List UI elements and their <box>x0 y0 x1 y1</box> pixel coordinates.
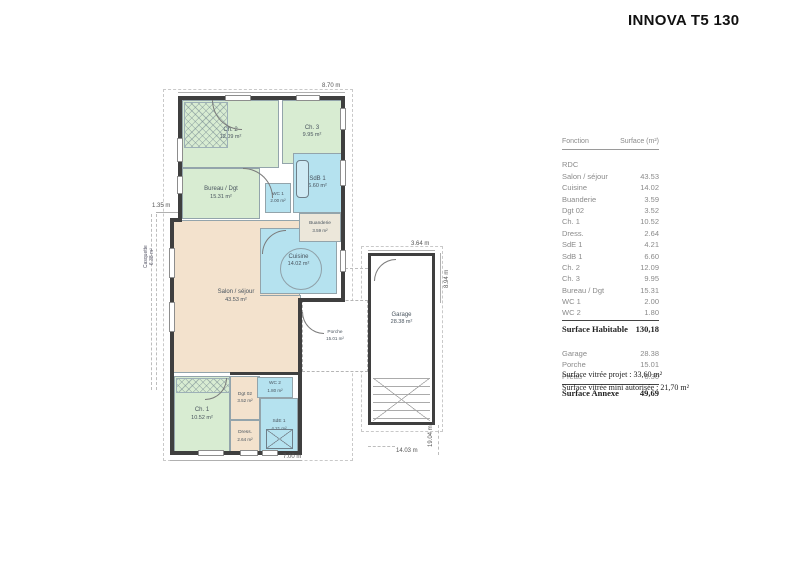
header-surface: Surface (m²) <box>620 138 659 145</box>
link-line-house-garage <box>345 268 368 269</box>
dim-1904: 19.04 m <box>428 425 434 447</box>
room-salon-extension <box>260 295 301 373</box>
window-left-1 <box>177 138 183 162</box>
dim-894: 8.94 m <box>444 270 450 288</box>
casquette-overhang-line-2 <box>156 214 157 390</box>
room-sdb1-label: SdB 1 6.60 m² <box>308 176 327 191</box>
window-left-4 <box>169 302 175 332</box>
table-row: Dgt 023.52 <box>562 204 659 215</box>
room-bureau-label: Bureau / Dgt 15.31 m² <box>204 186 238 201</box>
dim-1403: 14.03 m <box>396 448 418 454</box>
dimline-700 <box>170 460 302 461</box>
round-table <box>280 248 322 290</box>
table-row: Porche15.01 <box>562 358 659 369</box>
room-ch3-label: Ch. 3 9.95 m² <box>303 125 322 140</box>
dimline-1403 <box>368 446 395 447</box>
room-buanderie: Buanderie 3.59 m² <box>299 213 341 242</box>
table-row: SdB 16.60 <box>562 249 659 260</box>
window-right-3 <box>340 250 346 272</box>
room-buanderie-label: Buanderie 3.59 m² <box>309 221 331 233</box>
table-row: Salon / séjour43.53 <box>562 169 659 180</box>
room-ch1-label: Ch. 1 10.52 m² <box>191 407 213 422</box>
garage-ramp-hatch <box>373 378 430 421</box>
wall-porch-top <box>298 298 345 302</box>
dimline-894 <box>440 253 441 303</box>
dimline-870 <box>178 92 345 93</box>
table-row: Ch. 39.95 <box>562 272 659 283</box>
table-row: Cuisine14.02 <box>562 181 659 192</box>
table-row: Buanderie3.59 <box>562 192 659 203</box>
surface-table: Fonction Surface (m²) RDC Salon / séjour… <box>562 138 659 398</box>
room-salon-label: Salon / séjour 43.53 m² <box>218 289 255 304</box>
dimline-135 <box>156 212 178 213</box>
window-bottom-3 <box>262 450 278 456</box>
page-title: INNOVA T5 130 <box>628 12 739 29</box>
shower-sde1 <box>266 429 293 449</box>
table-row: Ch. 110.52 <box>562 215 659 226</box>
window-top-2 <box>296 95 320 101</box>
total-habitable: Surface Habitable 130,18 <box>562 320 659 334</box>
window-right-2 <box>340 160 346 186</box>
glass-note-project: Surface vitrée projet : 33,60 m² <box>562 369 732 382</box>
dim-700: 7.00 m <box>283 454 301 460</box>
table-row: WC 12.00 <box>562 295 659 306</box>
bathtub-sdb1 <box>296 160 309 198</box>
dimline-1904 <box>438 425 439 455</box>
glass-note-minimum: Surface vitrée mini autorisée : 21,70 m² <box>562 382 732 395</box>
table-row: Garage28.38 <box>562 346 659 357</box>
room-dress: Dress. 2.64 m² <box>230 420 260 453</box>
dim-870: 8.70 m <box>322 83 340 89</box>
section-rdc: RDC <box>562 158 659 169</box>
wall-porch-left <box>298 298 302 378</box>
room-garage-label: Garage 28.38 m² <box>391 312 413 327</box>
room-dgt02: Dgt 02 3.52 m² <box>230 376 260 420</box>
header-fonction: Fonction <box>562 138 589 145</box>
room-porche-label: Porche 15.01 m² <box>326 330 344 342</box>
table-row: WC 21.80 <box>562 306 659 317</box>
table-row: Dress.2.64 <box>562 226 659 237</box>
room-dgt02-label: Dgt 02 3.52 m² <box>237 392 252 404</box>
table-row: SdE 14.21 <box>562 238 659 249</box>
window-left-3 <box>169 248 175 278</box>
wall-wing-top <box>230 372 302 375</box>
table-row: Bureau / Dgt15.31 <box>562 283 659 294</box>
room-wc2-label: WC 2 1.80 m² <box>267 381 282 393</box>
window-right-1 <box>340 108 346 130</box>
dim-364: 3.64 m <box>411 241 429 247</box>
room-dress-label: Dress. 2.64 m² <box>237 430 252 442</box>
glass-surface-notes: Surface vitrée projet : 33,60 m² Surface… <box>562 369 732 394</box>
room-porche: Porche 15.01 m² <box>302 300 368 372</box>
casquette-overhang-line <box>151 214 152 390</box>
surface-table-header: Fonction Surface (m²) <box>562 138 659 150</box>
floor-plan-sheet: INNOVA T5 130 Salon / séjour 43.53 m² Ch… <box>0 0 800 565</box>
dim-135: 1.35 m <box>152 203 170 209</box>
table-gap <box>562 334 659 346</box>
wall-wing-right <box>298 374 302 455</box>
window-left-2 <box>177 176 183 194</box>
room-wc2: WC 2 1.80 m² <box>257 377 293 398</box>
label-casquette: Casquette 6.38 m² <box>143 245 155 268</box>
window-bottom-1 <box>198 450 224 456</box>
table-row: Ch. 212.09 <box>562 261 659 272</box>
window-bottom-2 <box>240 450 258 456</box>
dimline-364 <box>368 250 435 251</box>
